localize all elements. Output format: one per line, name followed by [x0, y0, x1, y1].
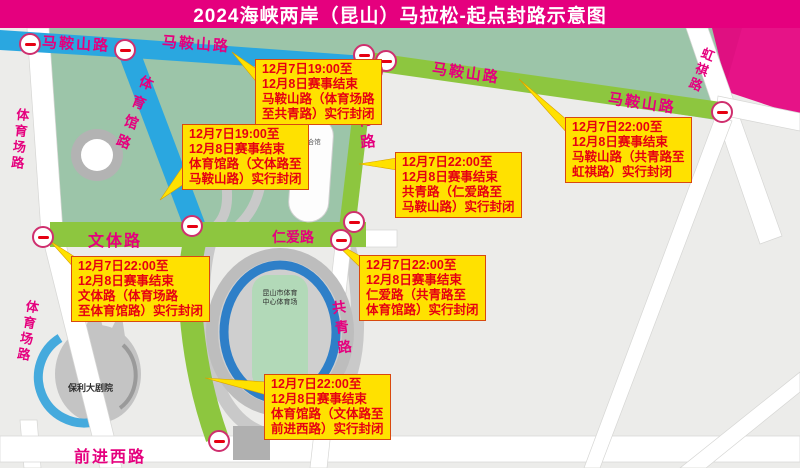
no-entry-sign-wenti-west — [32, 226, 54, 248]
callout-line: 马鞍山路（共青路至 — [572, 150, 685, 165]
callout-line: 仁爱路（共青路至 — [366, 288, 479, 303]
callout-line: 至体育馆路）实行封闭 — [78, 304, 203, 319]
callout-line: 12月7日19:00至 — [262, 62, 375, 77]
no-entry-sign-maanshan-tiyuguan — [114, 39, 136, 61]
callout-tiyuguan-north-closure: 12月7日19:00至 12月8日赛事结束 体育馆路（文体路至 马鞍山路）实行封… — [182, 124, 309, 190]
callout-line: 体育馆路（文体路至 — [189, 157, 302, 172]
callout-line: 12月7日19:00至 — [189, 127, 302, 142]
callout-wenti-closure: 12月7日22:00至 12月8日赛事结束 文体路（体育场路 至体育馆路）实行封… — [71, 256, 210, 322]
callout-line: 12月8日赛事结束 — [262, 77, 375, 92]
callout-line: 12月7日22:00至 — [271, 377, 384, 392]
road-label-renai: 仁爱路 — [272, 227, 314, 247]
callout-line: 12月8日赛事结束 — [572, 135, 685, 150]
stadium-label-line2: 中心体育场 — [263, 299, 298, 306]
callout-line: 12月7日22:00至 — [572, 120, 685, 135]
no-entry-bar — [25, 43, 36, 46]
callout-tiyuguan-south-closure: 12月7日22:00至 12月8日赛事结束 体育馆路（文体路至 前进西路）实行封… — [264, 374, 391, 440]
callout-renai-closure: 12月7日22:00至 12月8日赛事结束 仁爱路（共青路至 体育馆路）实行封闭 — [359, 255, 486, 321]
callout-line: 12月7日22:00至 — [402, 155, 515, 170]
road-closure-map: 2024海峡两岸（昆山）马拉松-起点封路示意图 马鞍山路 马鞍山路 马鞍山路 马… — [0, 0, 800, 468]
callout-line: 12月7日22:00至 — [366, 258, 479, 273]
callout-line: 至共青路）实行封闭 — [262, 107, 375, 122]
no-entry-bar — [717, 111, 728, 114]
no-entry-bar — [38, 236, 49, 239]
callout-line: 12月8日赛事结束 — [189, 142, 302, 157]
no-entry-sign-maanshan-west — [19, 33, 41, 55]
road-label-maanshan-blue-west: 马鞍山路 — [41, 31, 110, 56]
stadium-label-line1: 昆山市体育 — [263, 290, 298, 297]
no-entry-bar — [187, 225, 198, 228]
no-entry-bar — [359, 54, 370, 57]
callout-line: 体育馆路（文体路至 — [271, 407, 384, 422]
no-entry-bar — [336, 239, 347, 242]
title-banner: 2024海峡两岸（昆山）马拉松-起点封路示意图 — [0, 0, 800, 28]
callout-line: 体育馆路）实行封闭 — [366, 303, 479, 318]
no-entry-bar — [381, 60, 392, 63]
stadium-label: 昆山市体育 中心体育场 — [245, 289, 315, 307]
callout-line: 虹祺路）实行封闭 — [572, 165, 685, 180]
callout-line: 马鞍山路）实行封闭 — [402, 200, 515, 215]
callout-line: 12月8日赛事结束 — [402, 170, 515, 185]
callout-line: 马鞍山路（体育场路 — [262, 92, 375, 107]
page-title: 2024海峡两岸（昆山）马拉松-起点封路示意图 — [193, 1, 607, 28]
road-label-wenti: 文体路 — [88, 227, 142, 251]
callout-line: 文体路（体育场路 — [78, 289, 203, 304]
callout-line: 共青路（仁爱路至 — [402, 185, 515, 200]
callout-maanshan-west-closure: 12月7日19:00至 12月8日赛事结束 马鞍山路（体育场路 至共青路）实行封… — [255, 59, 382, 125]
callout-line: 前进西路）实行封闭 — [271, 422, 384, 437]
no-entry-sign-wenti-tiyuguan — [181, 215, 203, 237]
callout-maanshan-east-closure: 12月7日22:00至 12月8日赛事结束 马鞍山路（共青路至 虹祺路）实行封闭 — [565, 117, 692, 183]
callout-line: 12月7日22:00至 — [78, 259, 203, 274]
no-entry-bar — [120, 49, 131, 52]
no-entry-bar — [349, 221, 360, 224]
no-entry-bar — [214, 440, 225, 443]
no-entry-sign-hongqi — [711, 101, 733, 123]
no-entry-sign-qianjinxi — [208, 430, 230, 452]
callout-gongqing-closure: 12月7日22:00至 12月8日赛事结束 共青路（仁爱路至 马鞍山路）实行封闭 — [395, 152, 522, 218]
callout-line: 12月8日赛事结束 — [271, 392, 384, 407]
callout-line: 12月8日赛事结束 — [366, 273, 479, 288]
theater-label: 保利大剧院 — [68, 381, 113, 394]
callout-line: 马鞍山路）实行封闭 — [189, 172, 302, 187]
callout-line: 12月8日赛事结束 — [78, 274, 203, 289]
no-entry-sign-renai-b — [330, 229, 352, 251]
road-label-qianjinxi: 前进西路 — [74, 443, 146, 467]
